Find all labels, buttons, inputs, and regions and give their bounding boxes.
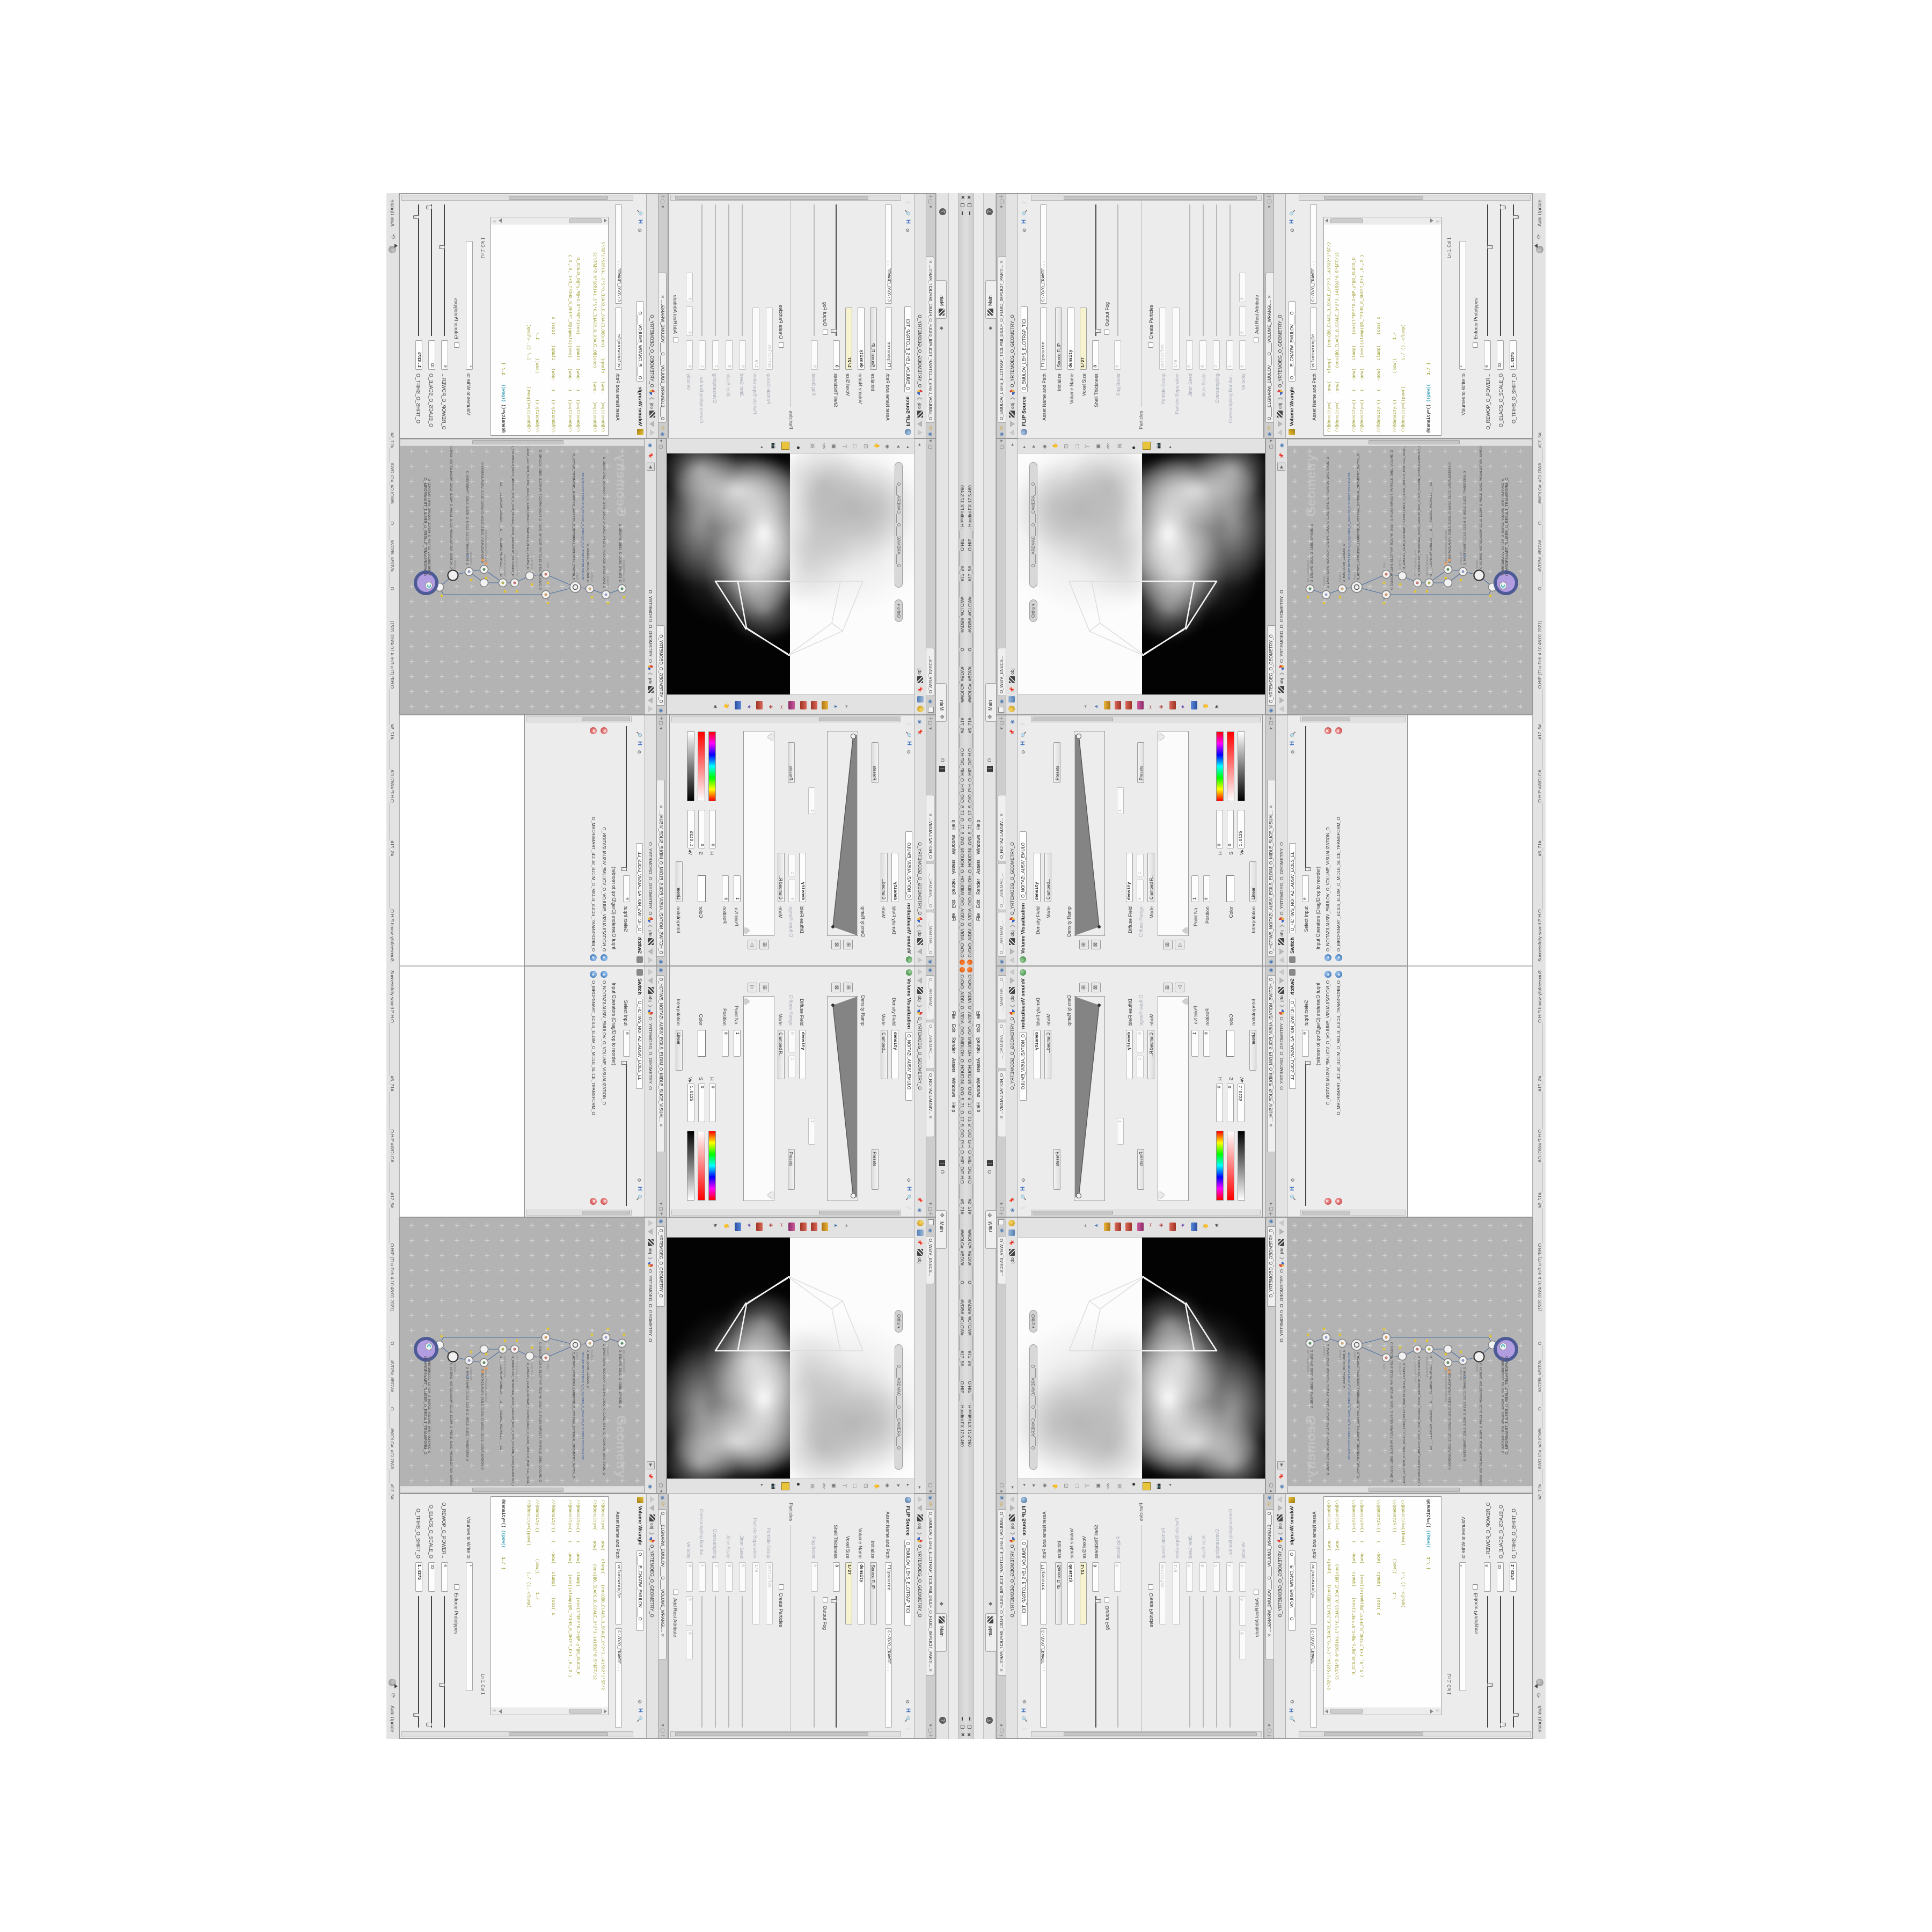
svg-text:VolumeVisualizationSlice: VolumeVisualizationSlice xyxy=(1445,530,1448,563)
svg-text:Volume Wrangle: Volume Wrangle xyxy=(1426,554,1429,576)
svg-text:O_SNOGYLOP_YRTEMOEG_MORF_EMULO: O_SNOGYLOP_YRTEMOEG_MORF_EMULOV_BDV_D_VD… xyxy=(511,446,514,576)
svg-text:JBO.M03.PETS.TEPOLS_D_SQUNEG_O: JBO.M03.PETS.TEPOLS_D_SQUNEG_O_GENUSS_D.… xyxy=(581,471,584,580)
svg-text:Clip: Clip xyxy=(546,1364,549,1370)
svg-text:Switch: Switch xyxy=(575,1352,579,1360)
svg-text:O_NOITAZILAUSIV_ECILS_ELDIM_O_: O_NOITAZILAUSIV_ECILS_ELDIM_O_MIDLE_SLIC… xyxy=(480,462,484,563)
svg-text:O_MROFSNART_ECILS_ELDIM_O_MIDL: O_MROFSNART_ECILS_ELDIM_O_MIDLE_SLICE_TR… xyxy=(465,1367,469,1461)
svg-text:O_EREHPS_EBUC_O_CUBE_SPHERE_O: O_EREHPS_EBUC_O_CUBE_SPHERE_O xyxy=(1311,524,1314,582)
svg-text:O_BUS_LOOB_GENUSS_O: O_BUS_LOOB_GENUSS_O xyxy=(586,544,589,582)
svg-text:PolyWire: PolyWire xyxy=(606,1344,609,1356)
svg-text:Switch: Switch xyxy=(1476,1363,1479,1372)
svg-text:O_MROFSNART_ECILS_ELDIM_O_MIDL: O_MROFSNART_ECILS_ELDIM_O_MIDLE_SLICE_TR… xyxy=(1463,471,1467,565)
svg-text:O_EMULOV_LEHS_ELCITRAP_TICILPM: O_EMULOV_LEHS_ELCITRAP_TICILPMI_DIULF_O_… xyxy=(1391,1342,1394,1482)
svg-text:Switch: Switch xyxy=(1476,560,1479,569)
svg-text:BoolSub: BoolSub xyxy=(590,1350,593,1361)
svg-text:O_NOITAZILAUSIV_ECILS_ELDIM_O_: O_NOITAZILAUSIV_ECILS_ELDIM_O_MIDLE_SLIC… xyxy=(1448,1369,1452,1470)
svg-text:O_HCTIWS_NOITAZILAUSIV_ECILS_E: O_HCTIWS_NOITAZILAUSIV_ECILS_ELDIM_O_MID… xyxy=(449,1363,452,1486)
svg-text:Switch: Switch xyxy=(575,572,579,580)
svg-text:Transform: Transform xyxy=(469,1367,472,1381)
svg-text:O_BUS_LOOB_GENUSS_O: O_BUS_LOOB_GENUSS_O xyxy=(586,1350,589,1388)
svg-text:JBO.M03.PETS.TEPOLS_D_SQUNEG_O: JBO.M03.PETS.TEPOLS_D_SQUNEG_O_GENUSS_D.… xyxy=(1348,1352,1351,1461)
svg-text:O_EMARFERIW_NOGYLOP_EREHPS_EBU: O_EMARFERIW_NOGYLOP_EREHPS_EBUC_O_CUBE_S… xyxy=(602,1344,605,1475)
svg-text:Volume Wrangle: Volume Wrangle xyxy=(503,1356,506,1378)
svg-text:FLIP Source: FLIP Source xyxy=(1399,553,1402,569)
svg-text:Switch: Switch xyxy=(453,560,456,569)
svg-text:O_HCTIWS_NOITAZILAUSIV_ECILS_E: O_HCTIWS_NOITAZILAUSIV_ECILS_ELDIM_O_MID… xyxy=(1480,1363,1483,1486)
svg-text:Geometry: Geometry xyxy=(613,454,628,517)
svg-text:Clip: Clip xyxy=(1383,1330,1386,1335)
svg-text:PolyWire: PolyWire xyxy=(606,576,609,588)
svg-text:O_NOITAZILAUSIV_ECILS_ELDIM_O_: O_NOITAZILAUSIV_ECILS_ELDIM_O_MIDLE_SLIC… xyxy=(480,1369,484,1470)
svg-text:Transform: Transform xyxy=(469,551,472,565)
svg-text:FLIP Source: FLIP Source xyxy=(1399,1363,1402,1379)
svg-text:BoolSub: BoolSub xyxy=(1339,571,1342,582)
svg-text:O____ELGNARW_EMULOV____O____VO: O____ELGNARW_EMULOV____O____VOLUME_WGANG… xyxy=(499,482,502,576)
svg-text:O_HCTIWS_NOITAZILAUSIV_ECILS_E: O_HCTIWS_NOITAZILAUSIV_ECILS_ELDIM_O_MID… xyxy=(1480,446,1483,569)
svg-text:Clip: Clip xyxy=(546,597,549,602)
svg-text:VolumeVisualizationSlice: VolumeVisualizationSlice xyxy=(484,530,487,563)
svg-text:O_EMULOV_LEHS_ELCITRAP_TICILPM: O_EMULOV_LEHS_ELCITRAP_TICILPMI_DIULF_O_… xyxy=(538,1342,541,1482)
svg-text:Clip: Clip xyxy=(1383,562,1386,568)
svg-text:O_EMARFERIW_NOGYLOP_EREHPS_EBU: O_EMARFERIW_NOGYLOP_EREHPS_EBUC_O_CUBE_S… xyxy=(1327,1344,1330,1475)
svg-text:PolyWire: PolyWire xyxy=(1323,1344,1326,1356)
svg-text:O_BUS_LOOB_GENUSS_O: O_BUS_LOOB_GENUSS_O xyxy=(1343,1350,1346,1388)
svg-text:O_EREHPS_EBUC_O_CUBE_SPHERE_O: O_EREHPS_EBUC_O_CUBE_SPHERE_O xyxy=(618,524,621,582)
svg-text:O_HCTIWS_NOITAZILAUSIV_ECILS_E: O_HCTIWS_NOITAZILAUSIV_ECILS_ELDIM_O_MID… xyxy=(449,446,452,569)
svg-text:Geometry: Geometry xyxy=(613,1415,628,1478)
svg-text:Clip: Clip xyxy=(1383,1364,1386,1370)
svg-text:VDB from Polygons: VDB from Polygons xyxy=(515,550,518,576)
svg-text:O____ELGNARW_EMULOV____O____VO: O____ELGNARW_EMULOV____O____VOLUME_WGANG… xyxy=(499,1356,502,1450)
svg-text:Geometry: Geometry xyxy=(1304,454,1319,517)
svg-text:O____ELGNARW_EMULOV____O____VO: O____ELGNARW_EMULOV____O____VOLUME_WGANG… xyxy=(1430,1356,1433,1450)
svg-text:VDB from Polygons: VDB from Polygons xyxy=(515,1356,518,1382)
svg-text:VolumeVisualizationSlice: VolumeVisualizationSlice xyxy=(484,1369,487,1402)
svg-text:O_EMARFERIW_NOGYLOP_EREHPS_EBU: O_EMARFERIW_NOGYLOP_EREHPS_EBUC_O_CUBE_S… xyxy=(1327,457,1330,588)
svg-text:JBO.M03.PETS.TEPOLS_D_SQUNEG_O: JBO.M03.PETS.TEPOLS_D_SQUNEG_O_GENUSS_D.… xyxy=(1348,471,1351,580)
svg-text:O_EMULOV_LEHS_ELCITRAP_TICILPM: O_EMULOV_LEHS_ELCITRAP_TICILPMI_DIULF_D_… xyxy=(526,446,529,569)
svg-text:O_EMARFERIW_NOGYLOP_EREHPS_EBU: O_EMARFERIW_NOGYLOP_EREHPS_EBUC_O_CUBE_S… xyxy=(602,457,605,588)
svg-text:JBO.M03.PETS.TEPOLS_D_SQUNEG_O: JBO.M03.PETS.TEPOLS_D_SQUNEG_O_GENUSS_D.… xyxy=(581,1352,584,1461)
svg-text:O_HCTIWS_YRTEMOEG_LANRETXE_O_I: O_HCTIWS_YRTEMOEG_LANRETXE_O_INTERNAL_EX… xyxy=(572,453,575,580)
svg-text:O_SNOGYLOP_YRTEMOEG_MORF_EMULO: O_SNOGYLOP_YRTEMOEG_MORF_EMULOV_BDV_D_VD… xyxy=(1418,1356,1421,1486)
svg-text:am_CubeSphere: am_CubeSphere xyxy=(622,560,625,582)
svg-text:O_EREHPS_EBUC_O_CUBE_SPHERE_O: O_EREHPS_EBUC_O_CUBE_SPHERE_O xyxy=(1311,1350,1314,1408)
svg-text:O_EMULOV_LEHS_ELCITRAP_TICILPM: O_EMULOV_LEHS_ELCITRAP_TICILPMI_DIULF_D_… xyxy=(1403,446,1406,569)
svg-text:PolyWire: PolyWire xyxy=(1323,576,1326,588)
svg-text:Switch: Switch xyxy=(1353,1352,1357,1360)
svg-text:O_HCTIWS_YRTEMOEG_LANRETXE_O_I: O_HCTIWS_YRTEMOEG_LANRETXE_O_INTERNAL_EX… xyxy=(1357,453,1360,580)
svg-text:O_HCTIWS_YRTEMOEG_LANRETXE_O_I: O_HCTIWS_YRTEMOEG_LANRETXE_O_INTERNAL_EX… xyxy=(1357,1352,1360,1479)
svg-text:O____ELGNARW_EMULOV____O____VO: O____ELGNARW_EMULOV____O____VOLUME_WGANG… xyxy=(1430,482,1433,576)
svg-text:VolumeVisualizationSlice: VolumeVisualizationSlice xyxy=(1445,1369,1448,1402)
svg-text:BoolSub: BoolSub xyxy=(1339,1350,1342,1361)
svg-text:O_BUS_LOOB_GENUSS_O: O_BUS_LOOB_GENUSS_O xyxy=(1343,544,1346,582)
svg-text:VDB from Polygons: VDB from Polygons xyxy=(1414,1356,1417,1382)
svg-text:O_MROFSNART_ECILS_ELDIM_O_MIDL: O_MROFSNART_ECILS_ELDIM_O_MIDLE_SLICE_TR… xyxy=(1463,1367,1467,1461)
svg-text:O_EMULOV_LEHS_ELCITRAP_TICILPM: O_EMULOV_LEHS_ELCITRAP_TICILPMI_DIULF_D_… xyxy=(1403,1363,1406,1486)
svg-text:O_EREHPS_EBUC_O_CUBE_SPHERE_O: O_EREHPS_EBUC_O_CUBE_SPHERE_O xyxy=(618,1350,621,1408)
svg-text:BoolSub: BoolSub xyxy=(590,571,593,582)
svg-text:Clip: Clip xyxy=(546,562,549,568)
svg-text:Volume Wrangle: Volume Wrangle xyxy=(503,554,506,576)
svg-text:Clip: Clip xyxy=(546,1330,549,1335)
svg-text:O_SNOGYLOP_YRTEMOEG_MORF_EMULO: O_SNOGYLOP_YRTEMOEG_MORF_EMULOV_BDV_D_VD… xyxy=(511,1356,514,1486)
svg-text:O_EMULOV_LEHS_ELCITRAP_TICILPM: O_EMULOV_LEHS_ELCITRAP_TICILPMI_DIULF_O_… xyxy=(1391,450,1394,590)
svg-text:Geometry: Geometry xyxy=(1304,1415,1319,1478)
svg-text:Switch: Switch xyxy=(453,1363,456,1372)
svg-text:O_SNOGYLOP_YRTEMOEG_MORF_EMULO: O_SNOGYLOP_YRTEMOEG_MORF_EMULOV_BDV_D_VD… xyxy=(1418,446,1421,576)
svg-text:am_CubeSphere: am_CubeSphere xyxy=(622,1350,625,1372)
svg-text:Transform: Transform xyxy=(1460,551,1463,565)
svg-text:FLIP Source: FLIP Source xyxy=(530,553,533,569)
svg-text:O_MROFSNART_ECILS_ELDIM_O_MIDL: O_MROFSNART_ECILS_ELDIM_O_MIDLE_SLICE_TR… xyxy=(465,471,469,565)
svg-text:O_NOITAZILAUSIV_ECILS_ELDIM_O_: O_NOITAZILAUSIV_ECILS_ELDIM_O_MIDLE_SLIC… xyxy=(1448,462,1452,563)
svg-text:O_EMULOV_LEHS_ELCITRAP_TICILPM: O_EMULOV_LEHS_ELCITRAP_TICILPMI_DIULF_O_… xyxy=(538,450,541,590)
svg-text:Volume Wrangle: Volume Wrangle xyxy=(1426,1356,1429,1378)
svg-text:am_CubeSphere: am_CubeSphere xyxy=(1307,560,1310,582)
svg-text:O_HCTIWS_YRTEMOEG_LANRETXE_O_I: O_HCTIWS_YRTEMOEG_LANRETXE_O_INTERNAL_EX… xyxy=(572,1352,575,1479)
svg-text:Switch: Switch xyxy=(1353,572,1357,580)
svg-text:VDB from Polygons: VDB from Polygons xyxy=(1414,550,1417,576)
svg-text:Transform: Transform xyxy=(1460,1367,1463,1381)
svg-text:Clip: Clip xyxy=(1383,597,1386,602)
svg-text:FLIP Source: FLIP Source xyxy=(530,1363,533,1379)
svg-text:am_CubeSphere: am_CubeSphere xyxy=(1307,1350,1310,1372)
svg-text:O_EMULOV_LEHS_ELCITRAP_TICILPM: O_EMULOV_LEHS_ELCITRAP_TICILPMI_DIULF_D_… xyxy=(526,1363,529,1486)
